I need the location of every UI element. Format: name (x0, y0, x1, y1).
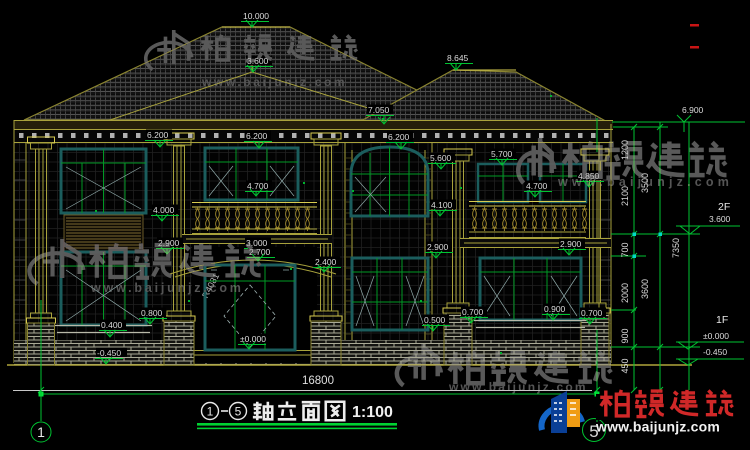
svg-text:1: 1 (207, 405, 214, 419)
svg-text:1F: 1F (716, 314, 728, 326)
svg-text:-0.450: -0.450 (97, 348, 121, 358)
svg-text:2.900: 2.900 (427, 242, 449, 252)
svg-text:0.400: 0.400 (101, 320, 123, 330)
svg-text:4.100: 4.100 (431, 200, 453, 210)
svg-text:www.baijunjz.com: www.baijunjz.com (595, 419, 720, 435)
svg-text:700: 700 (620, 242, 630, 257)
svg-text:6.200: 6.200 (147, 130, 169, 140)
svg-text:3.600: 3.600 (709, 214, 731, 224)
svg-text:1:100: 1:100 (352, 404, 393, 421)
svg-text:7.050: 7.050 (368, 105, 390, 115)
svg-text:0.700: 0.700 (462, 307, 484, 317)
svg-text:6.200: 6.200 (388, 132, 410, 142)
svg-text:2F: 2F (718, 201, 730, 213)
svg-text:www.baijunjz.com: www.baijunjz.com (90, 281, 244, 295)
svg-text:www.baijunjz.com: www.baijunjz.com (448, 380, 588, 394)
svg-text:±0.000: ±0.000 (703, 331, 729, 341)
svg-text:0.700: 0.700 (581, 308, 603, 318)
svg-text:4.000: 4.000 (153, 205, 175, 215)
svg-text:4.700: 4.700 (526, 181, 548, 191)
svg-text:10.000: 10.000 (243, 11, 269, 21)
svg-text:3600: 3600 (640, 279, 650, 299)
svg-text:0.800: 0.800 (141, 308, 163, 318)
svg-text:0.500: 0.500 (424, 315, 446, 325)
svg-text:5: 5 (235, 405, 242, 419)
svg-text:1: 1 (37, 424, 45, 440)
svg-text:5.700: 5.700 (491, 149, 513, 159)
svg-text:900: 900 (620, 328, 630, 343)
svg-text:www.baijunjz.com: www.baijunjz.com (201, 75, 347, 89)
svg-text:-0.450: -0.450 (703, 347, 727, 357)
svg-text:16800: 16800 (302, 375, 334, 387)
svg-text:5.600: 5.600 (430, 153, 452, 163)
svg-text:2.900: 2.900 (560, 239, 582, 249)
svg-text:6.900: 6.900 (682, 105, 704, 115)
svg-text:6.200: 6.200 (246, 131, 268, 141)
svg-text:450: 450 (620, 358, 630, 373)
svg-text:0.900: 0.900 (544, 304, 566, 314)
svg-text:2000: 2000 (620, 283, 630, 303)
svg-text:7350: 7350 (671, 238, 681, 258)
svg-text:www.baijunjz.com: www.baijunjz.com (557, 175, 733, 189)
svg-text:8.645: 8.645 (447, 53, 469, 63)
